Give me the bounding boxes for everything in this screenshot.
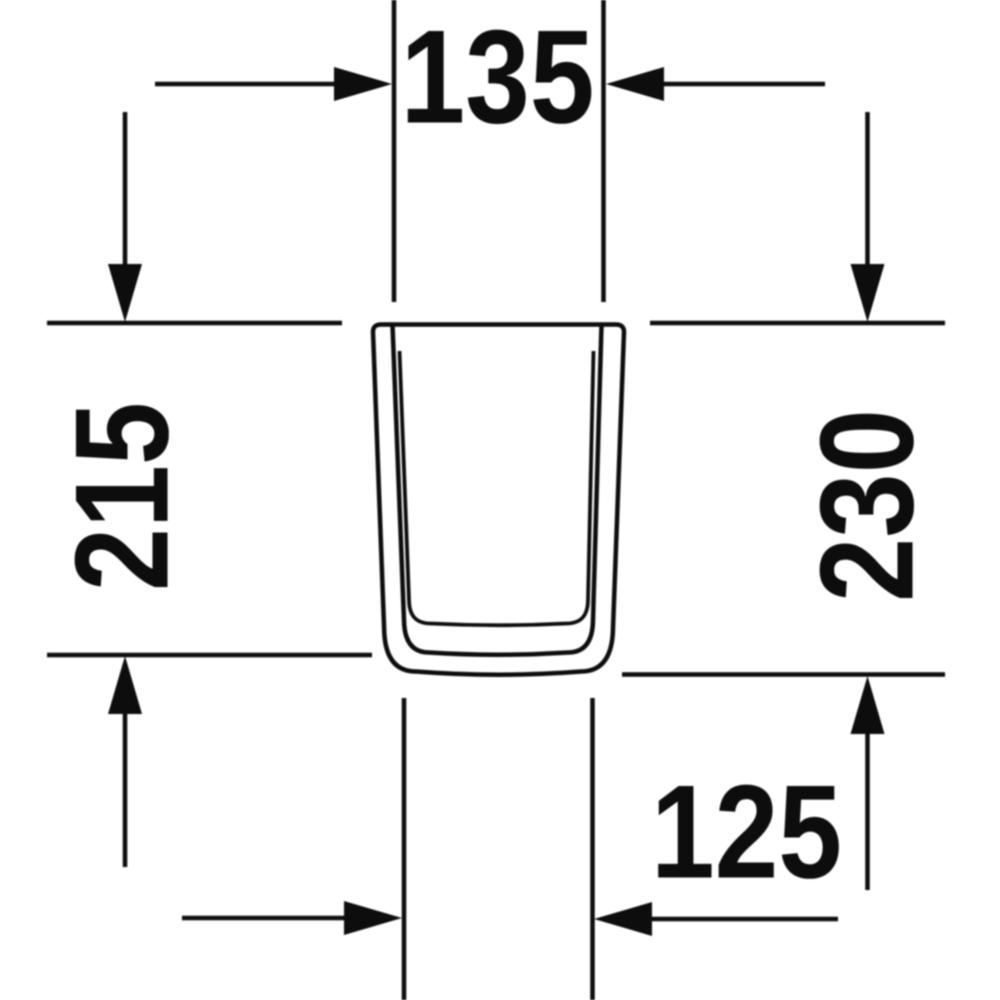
svg-text:230: 230 (794, 409, 942, 602)
svg-text:215: 215 (49, 402, 197, 591)
svg-text:135: 135 (401, 4, 595, 152)
svg-text:125: 125 (651, 759, 842, 907)
